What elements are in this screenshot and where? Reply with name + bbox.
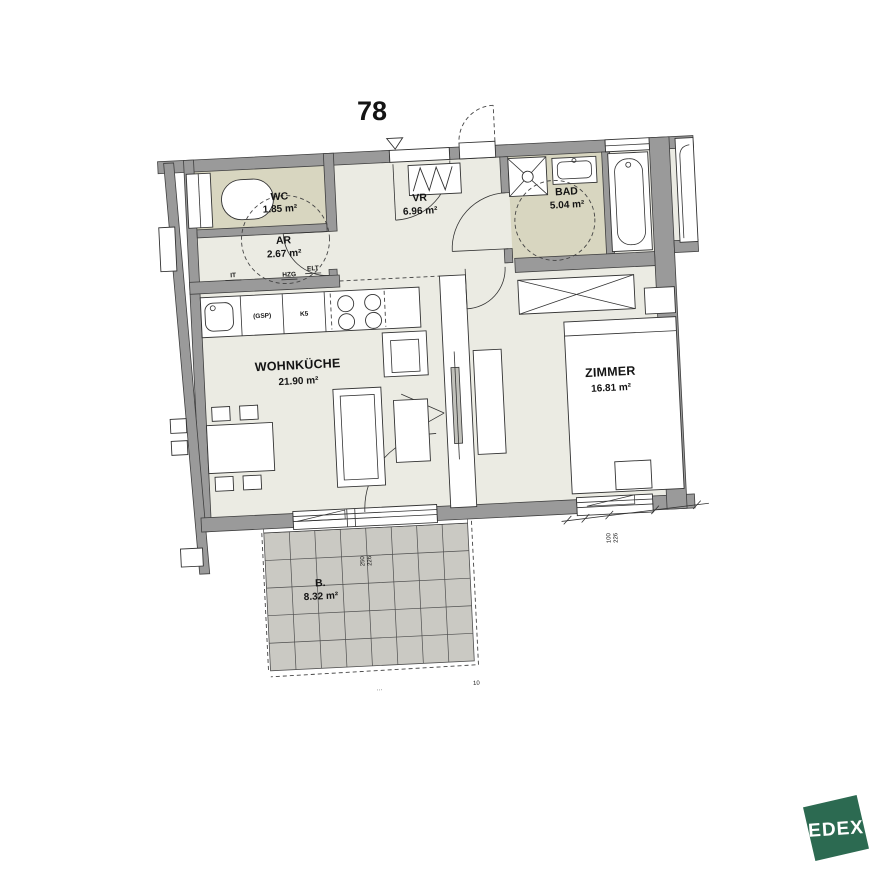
chair-symbol: [240, 405, 259, 420]
dim-zimmer-window-width: 100: [606, 532, 613, 543]
dim-zimmer-window-height: 226: [613, 532, 620, 543]
dim-balcony-door-width: 250: [360, 555, 367, 566]
room-area-wohnkueche: 21.90 m²: [278, 375, 319, 388]
nightstand-symbol: [644, 287, 675, 314]
room-area-bad: 5.04 m²: [550, 199, 586, 212]
balcony: [262, 518, 479, 677]
room-label-balkon: B.: [315, 577, 326, 590]
room-area-zimmer: 16.81 m²: [591, 382, 632, 395]
zimmer-window: [576, 494, 653, 516]
bath-window: [605, 138, 650, 152]
label-gsp: (GSP): [253, 312, 271, 320]
edex-logo: EDEX: [801, 795, 870, 862]
sideboard-symbol: [473, 349, 506, 454]
floorplan-page: 78: [0, 0, 883, 870]
chair-symbol: [212, 407, 231, 422]
room-label-vr: VR: [412, 192, 428, 205]
room-area-ar: 2.67 m²: [267, 248, 303, 261]
label-hzg: HZG: [282, 271, 296, 279]
wall-bad-left-lower: [504, 249, 513, 263]
room-area-balkon: 8.32 m²: [303, 590, 339, 603]
room-label-ar: AR: [276, 234, 292, 247]
room-label-bad: BAD: [555, 185, 579, 198]
dim-balcony-door-height: 226: [367, 555, 374, 566]
bench-symbol: [615, 460, 652, 490]
unit-number: 78: [357, 96, 387, 126]
room-area-vr: 6.96 m²: [403, 205, 439, 218]
coffee-table-symbol: [393, 399, 430, 463]
dim-balcony-edge: 10: [473, 681, 481, 687]
wardrobe-x-symbol: [518, 275, 636, 315]
edex-logo-text: EDEX: [808, 817, 865, 842]
room-label-zimmer: ZIMMER: [585, 364, 636, 380]
armchair-symbol: [382, 331, 428, 377]
stairwell-door: [457, 105, 495, 159]
room-label-wc: WC: [270, 190, 288, 203]
sink-symbol: [552, 156, 597, 184]
chair-symbol: [243, 475, 262, 490]
dining-table-symbol: [206, 422, 274, 473]
entrance-marker-icon: [387, 138, 404, 150]
wardrobe-symbol: [408, 163, 461, 196]
vr-fixtures: [408, 163, 461, 196]
dim-separator: ···: [376, 687, 382, 693]
room-area-wc: 1.85 m²: [263, 203, 299, 216]
chair-symbol: [215, 476, 234, 491]
label-it: IT: [230, 272, 236, 279]
apartment-plan: WC 1.85 m² AR 2.67 m² VR 6.96 m² BAD 5.0…: [154, 96, 720, 704]
bathtub-symbol: [608, 152, 653, 252]
shower-symbol: [508, 157, 548, 197]
floorplan-drawing: 78: [0, 0, 883, 870]
label-k5: K5: [300, 311, 309, 318]
label-elt: ELT: [307, 265, 319, 273]
